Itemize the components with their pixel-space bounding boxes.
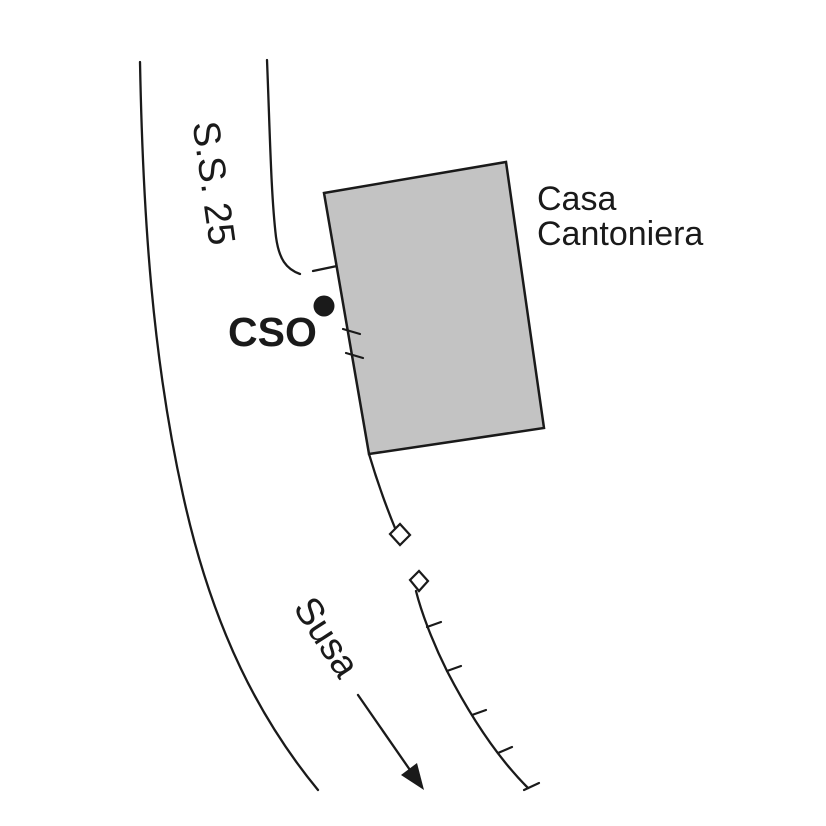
direction-label: Susa	[285, 590, 368, 686]
direction-arrow-shaft	[358, 695, 410, 770]
embankment-tick-3	[472, 710, 486, 715]
road-label: S.S. 25	[184, 119, 243, 248]
direction-arrowhead-icon	[401, 763, 424, 790]
embankment-tick-2	[447, 666, 461, 671]
path-square-marker-1	[390, 524, 410, 545]
road-entrance-dash	[313, 266, 337, 271]
building	[324, 162, 544, 454]
map-canvas: S.S. 25 CSO Casa Cantoniera Susa	[0, 0, 826, 826]
embankment-tick-1	[427, 622, 441, 627]
site-map-svg: S.S. 25 CSO Casa Cantoniera Susa	[0, 0, 826, 826]
embankment-tick-4	[498, 747, 512, 753]
path-square-marker-2	[410, 571, 428, 591]
road-right-edge	[267, 60, 300, 274]
building-label-line1: Casa	[537, 180, 616, 218]
building-label-line2: Cantoniera	[537, 215, 703, 253]
access-path	[369, 454, 395, 528]
embankment-path	[416, 591, 528, 788]
station-label: CSO	[228, 309, 317, 355]
